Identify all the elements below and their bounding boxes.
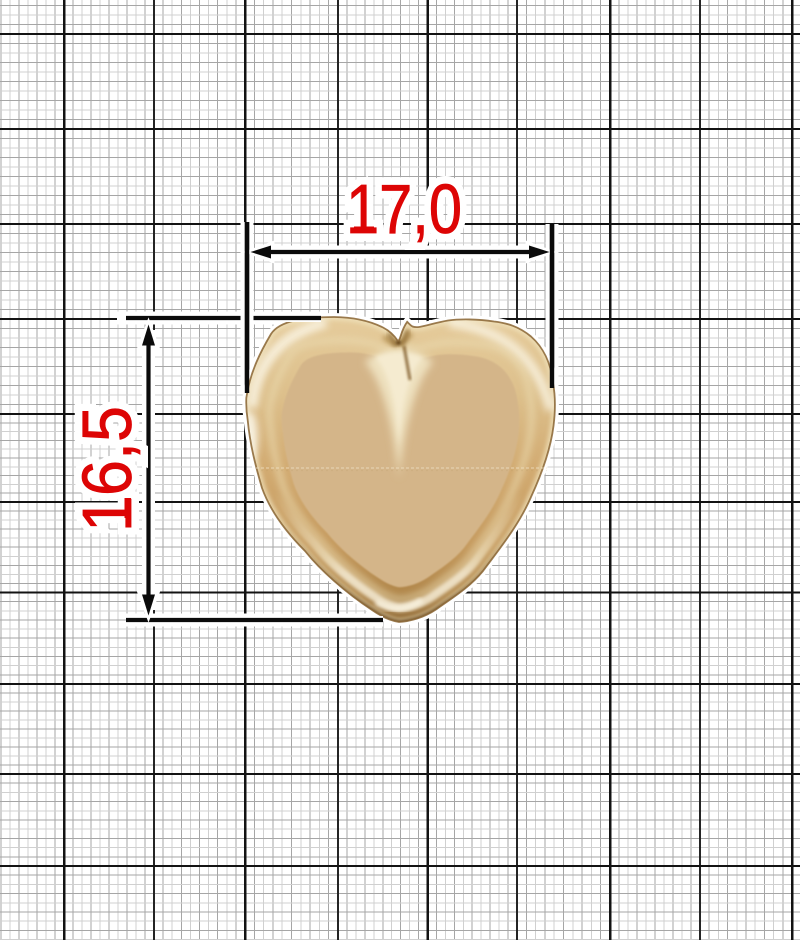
svg-text:17,0: 17,0 — [346, 170, 462, 248]
svg-text:16,5: 16,5 — [68, 406, 146, 532]
